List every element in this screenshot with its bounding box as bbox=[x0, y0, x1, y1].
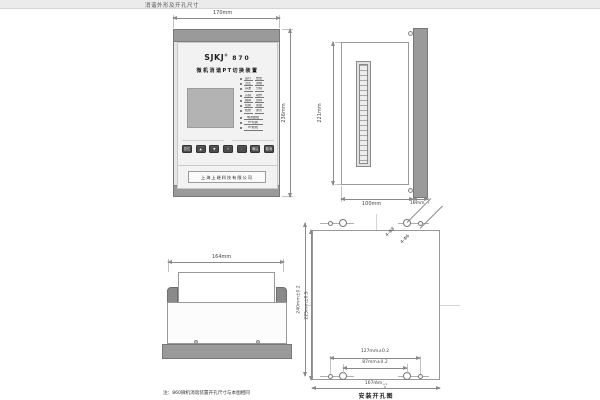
led-icon bbox=[240, 78, 242, 80]
terminal-block bbox=[356, 61, 371, 167]
top-width-dim-line bbox=[168, 262, 284, 263]
indicator-row: 检修通讯 bbox=[240, 109, 276, 113]
device-subtitle: 微机消谐PT切换装置 bbox=[178, 67, 277, 74]
indicator-row: 过压谐振 bbox=[240, 82, 276, 86]
indicator-row: 跳闸合闸 bbox=[240, 99, 276, 103]
mounting-clip-right bbox=[276, 287, 287, 303]
indicator-label: 告警 bbox=[255, 77, 264, 81]
confirm-button: 确认 bbox=[250, 145, 260, 153]
hole-axis-line bbox=[320, 376, 354, 377]
divider bbox=[178, 165, 277, 166]
leader-line bbox=[420, 206, 443, 229]
led-icon bbox=[240, 105, 242, 107]
indicator-label: 检修 bbox=[244, 109, 253, 113]
cutout-height-outer-dim-label: 240mm±0.2 bbox=[297, 277, 302, 323]
reset-button: 复位 bbox=[182, 145, 192, 153]
drawing-canvas: 消谐外形及开孔尺寸 170mm SJKJ®870 微机消谐PT切换装置 运行告警… bbox=[0, 0, 600, 400]
mounting-clip-left bbox=[167, 287, 178, 303]
drawing-note: 注：860微机消谐装置开孔尺寸与本图相同 bbox=[163, 390, 250, 396]
led-icon bbox=[240, 117, 242, 119]
cutout-height-inner-dim-label: 225mm±0.5 bbox=[305, 283, 310, 329]
indicator-label: 动作 bbox=[255, 94, 264, 98]
side-height-dim-label: 221mm bbox=[317, 90, 323, 136]
mounting-hole-small bbox=[328, 221, 333, 226]
indicator-label: 跳闸 bbox=[244, 99, 253, 103]
hole-axis-line bbox=[320, 223, 354, 224]
bezel-dim-line bbox=[413, 199, 428, 200]
mounting-hole-small bbox=[328, 374, 333, 379]
led-icon bbox=[240, 110, 242, 112]
holes-inner-dim-line bbox=[343, 368, 407, 369]
mounting-hole-large bbox=[339, 219, 347, 227]
indicator-row: PT切换 bbox=[240, 121, 276, 125]
indicator-row: PT断线 bbox=[240, 126, 276, 130]
titlebar: 消谐外形及开孔尺寸 bbox=[0, 0, 600, 9]
brand-text: SJKJ bbox=[204, 53, 224, 62]
indicator-label: 高频 bbox=[244, 94, 253, 98]
down-button: ▼ bbox=[209, 145, 219, 153]
cutout-width-tolerance: +10 bbox=[383, 383, 387, 389]
tolerance-lower: 0 bbox=[383, 386, 387, 389]
led-icon bbox=[240, 83, 242, 85]
company-nameplate: 上海上继科技有限公司 bbox=[188, 171, 266, 183]
indicator-label: 基波 bbox=[244, 87, 253, 91]
cancel-button: 取消 bbox=[264, 145, 274, 153]
ext-line bbox=[335, 42, 341, 43]
side-height-dim-line bbox=[333, 42, 334, 185]
front-panel: SJKJ®870 微机消谐PT切换装置 运行告警 过压谐振 基波分频 高频动作 … bbox=[173, 29, 280, 197]
indicator-label: 合闸 bbox=[255, 99, 264, 103]
side-view-front-bezel bbox=[413, 28, 428, 198]
indicator-row: 运行告警 bbox=[240, 77, 276, 81]
terminal-segments bbox=[359, 64, 368, 164]
cutout-width-value: 167mm bbox=[365, 381, 382, 386]
up-button: ▲ bbox=[196, 145, 206, 153]
panel-top-band bbox=[174, 30, 279, 42]
led-icon bbox=[240, 95, 242, 97]
screw-icon bbox=[408, 188, 413, 193]
minus-button: - bbox=[237, 145, 247, 153]
indicator-panel: 运行告警 过压谐振 基波分频 高频动作 跳闸合闸 切换闭锁 检修通讯 电源故障 … bbox=[240, 77, 276, 132]
indicator-label: 谐振 bbox=[255, 82, 264, 86]
top-width-dim-label: 164mm bbox=[212, 254, 231, 260]
cutout-caption: 安装开孔图 bbox=[312, 391, 440, 400]
page-title: 消谐外形及开孔尺寸 bbox=[145, 1, 199, 9]
cutout-width-dim-label: 167mm+10 bbox=[312, 381, 440, 389]
front-height-dim-line bbox=[290, 29, 291, 197]
indicator-row: 电源故障 bbox=[240, 116, 276, 120]
holes-outer-dim-line bbox=[330, 358, 420, 359]
top-view-rear-case bbox=[178, 272, 275, 303]
holes-outer-dim-label: 127mm±0.2 bbox=[330, 349, 420, 354]
indicator-label: 分频 bbox=[255, 87, 264, 91]
divider bbox=[232, 140, 274, 141]
indicator-label: 切换 bbox=[244, 104, 253, 108]
brand-logo: SJKJ®870 bbox=[178, 53, 277, 62]
ext-line bbox=[335, 184, 341, 185]
led-icon bbox=[240, 88, 242, 90]
led-icon bbox=[240, 127, 242, 129]
plus-button: + bbox=[223, 145, 233, 153]
button-row: 复位 ▲ ▼ + - 确认 取消 bbox=[182, 145, 274, 153]
indicator-row: 高频动作 bbox=[240, 94, 276, 98]
depth-dim-label: 100mm bbox=[362, 201, 381, 207]
top-view-front-bezel bbox=[162, 344, 292, 359]
cutout-height-inner-dim-line bbox=[311, 230, 312, 380]
indicator-label: PT断线 bbox=[244, 126, 263, 130]
front-width-dim-line bbox=[173, 18, 280, 19]
divider bbox=[182, 140, 224, 141]
front-height-dim-label: 236mm bbox=[281, 90, 287, 136]
side-view-body bbox=[341, 42, 409, 185]
top-view-body bbox=[167, 302, 287, 344]
indicator-label: 电源故障 bbox=[244, 116, 263, 120]
front-width-dim-label: 170mm bbox=[213, 10, 232, 16]
indicator-label: PT切换 bbox=[244, 121, 263, 125]
holes-inner-dim-label: 87mm±0.2 bbox=[343, 360, 407, 365]
indicator-row: 基波分频 bbox=[240, 87, 276, 91]
indicator-row: 切换闭锁 bbox=[240, 104, 276, 108]
screw-icon bbox=[408, 31, 413, 36]
indicator-label: 过压 bbox=[244, 82, 253, 86]
indicator-label: 运行 bbox=[244, 77, 253, 81]
indicator-label: 通讯 bbox=[255, 109, 264, 113]
brand-reg-mark: ® bbox=[224, 53, 228, 57]
mounting-hole-small bbox=[418, 374, 423, 379]
lcd-screen bbox=[187, 88, 234, 128]
panel-face: SJKJ®870 微机消谐PT切换装置 运行告警 过压谐振 基波分频 高频动作 … bbox=[177, 42, 278, 189]
model-number: 870 bbox=[232, 55, 251, 62]
led-icon bbox=[240, 100, 242, 102]
depth-dim-line bbox=[341, 199, 413, 200]
indicator-label: 闭锁 bbox=[255, 104, 264, 108]
led-icon bbox=[240, 122, 242, 124]
